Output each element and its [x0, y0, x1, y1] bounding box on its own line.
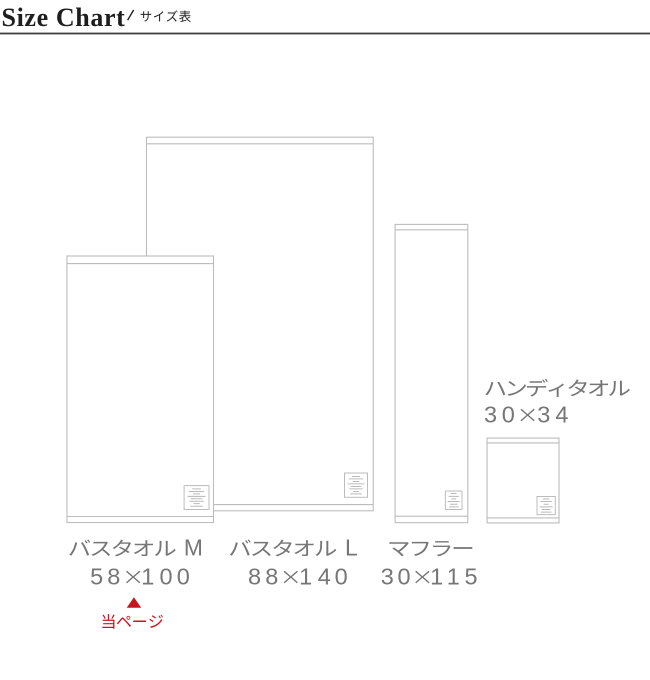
- svg-text:1: 1: [447, 564, 460, 590]
- svg-text:M: M: [184, 535, 203, 561]
- svg-text:8: 8: [265, 564, 278, 590]
- svg-text:4: 4: [318, 564, 331, 590]
- svg-text:5: 5: [465, 564, 478, 590]
- svg-text:3: 3: [381, 564, 394, 590]
- svg-text:8: 8: [107, 564, 120, 590]
- svg-text:3: 3: [484, 402, 497, 428]
- svg-text:5: 5: [90, 564, 103, 590]
- svg-text:0: 0: [160, 564, 173, 590]
- svg-text:0: 0: [398, 564, 411, 590]
- svg-text:L: L: [345, 535, 358, 561]
- svg-text:1: 1: [430, 564, 443, 590]
- svg-text:1: 1: [141, 564, 154, 590]
- svg-text:3: 3: [537, 402, 550, 428]
- svg-text:1: 1: [299, 564, 312, 590]
- svg-text:8: 8: [248, 564, 261, 590]
- svg-text:0: 0: [502, 402, 515, 428]
- svg-text:Size Chart: Size Chart: [2, 3, 126, 32]
- svg-text:4: 4: [555, 402, 568, 428]
- svg-text:0: 0: [335, 564, 348, 590]
- svg-text:0: 0: [177, 564, 190, 590]
